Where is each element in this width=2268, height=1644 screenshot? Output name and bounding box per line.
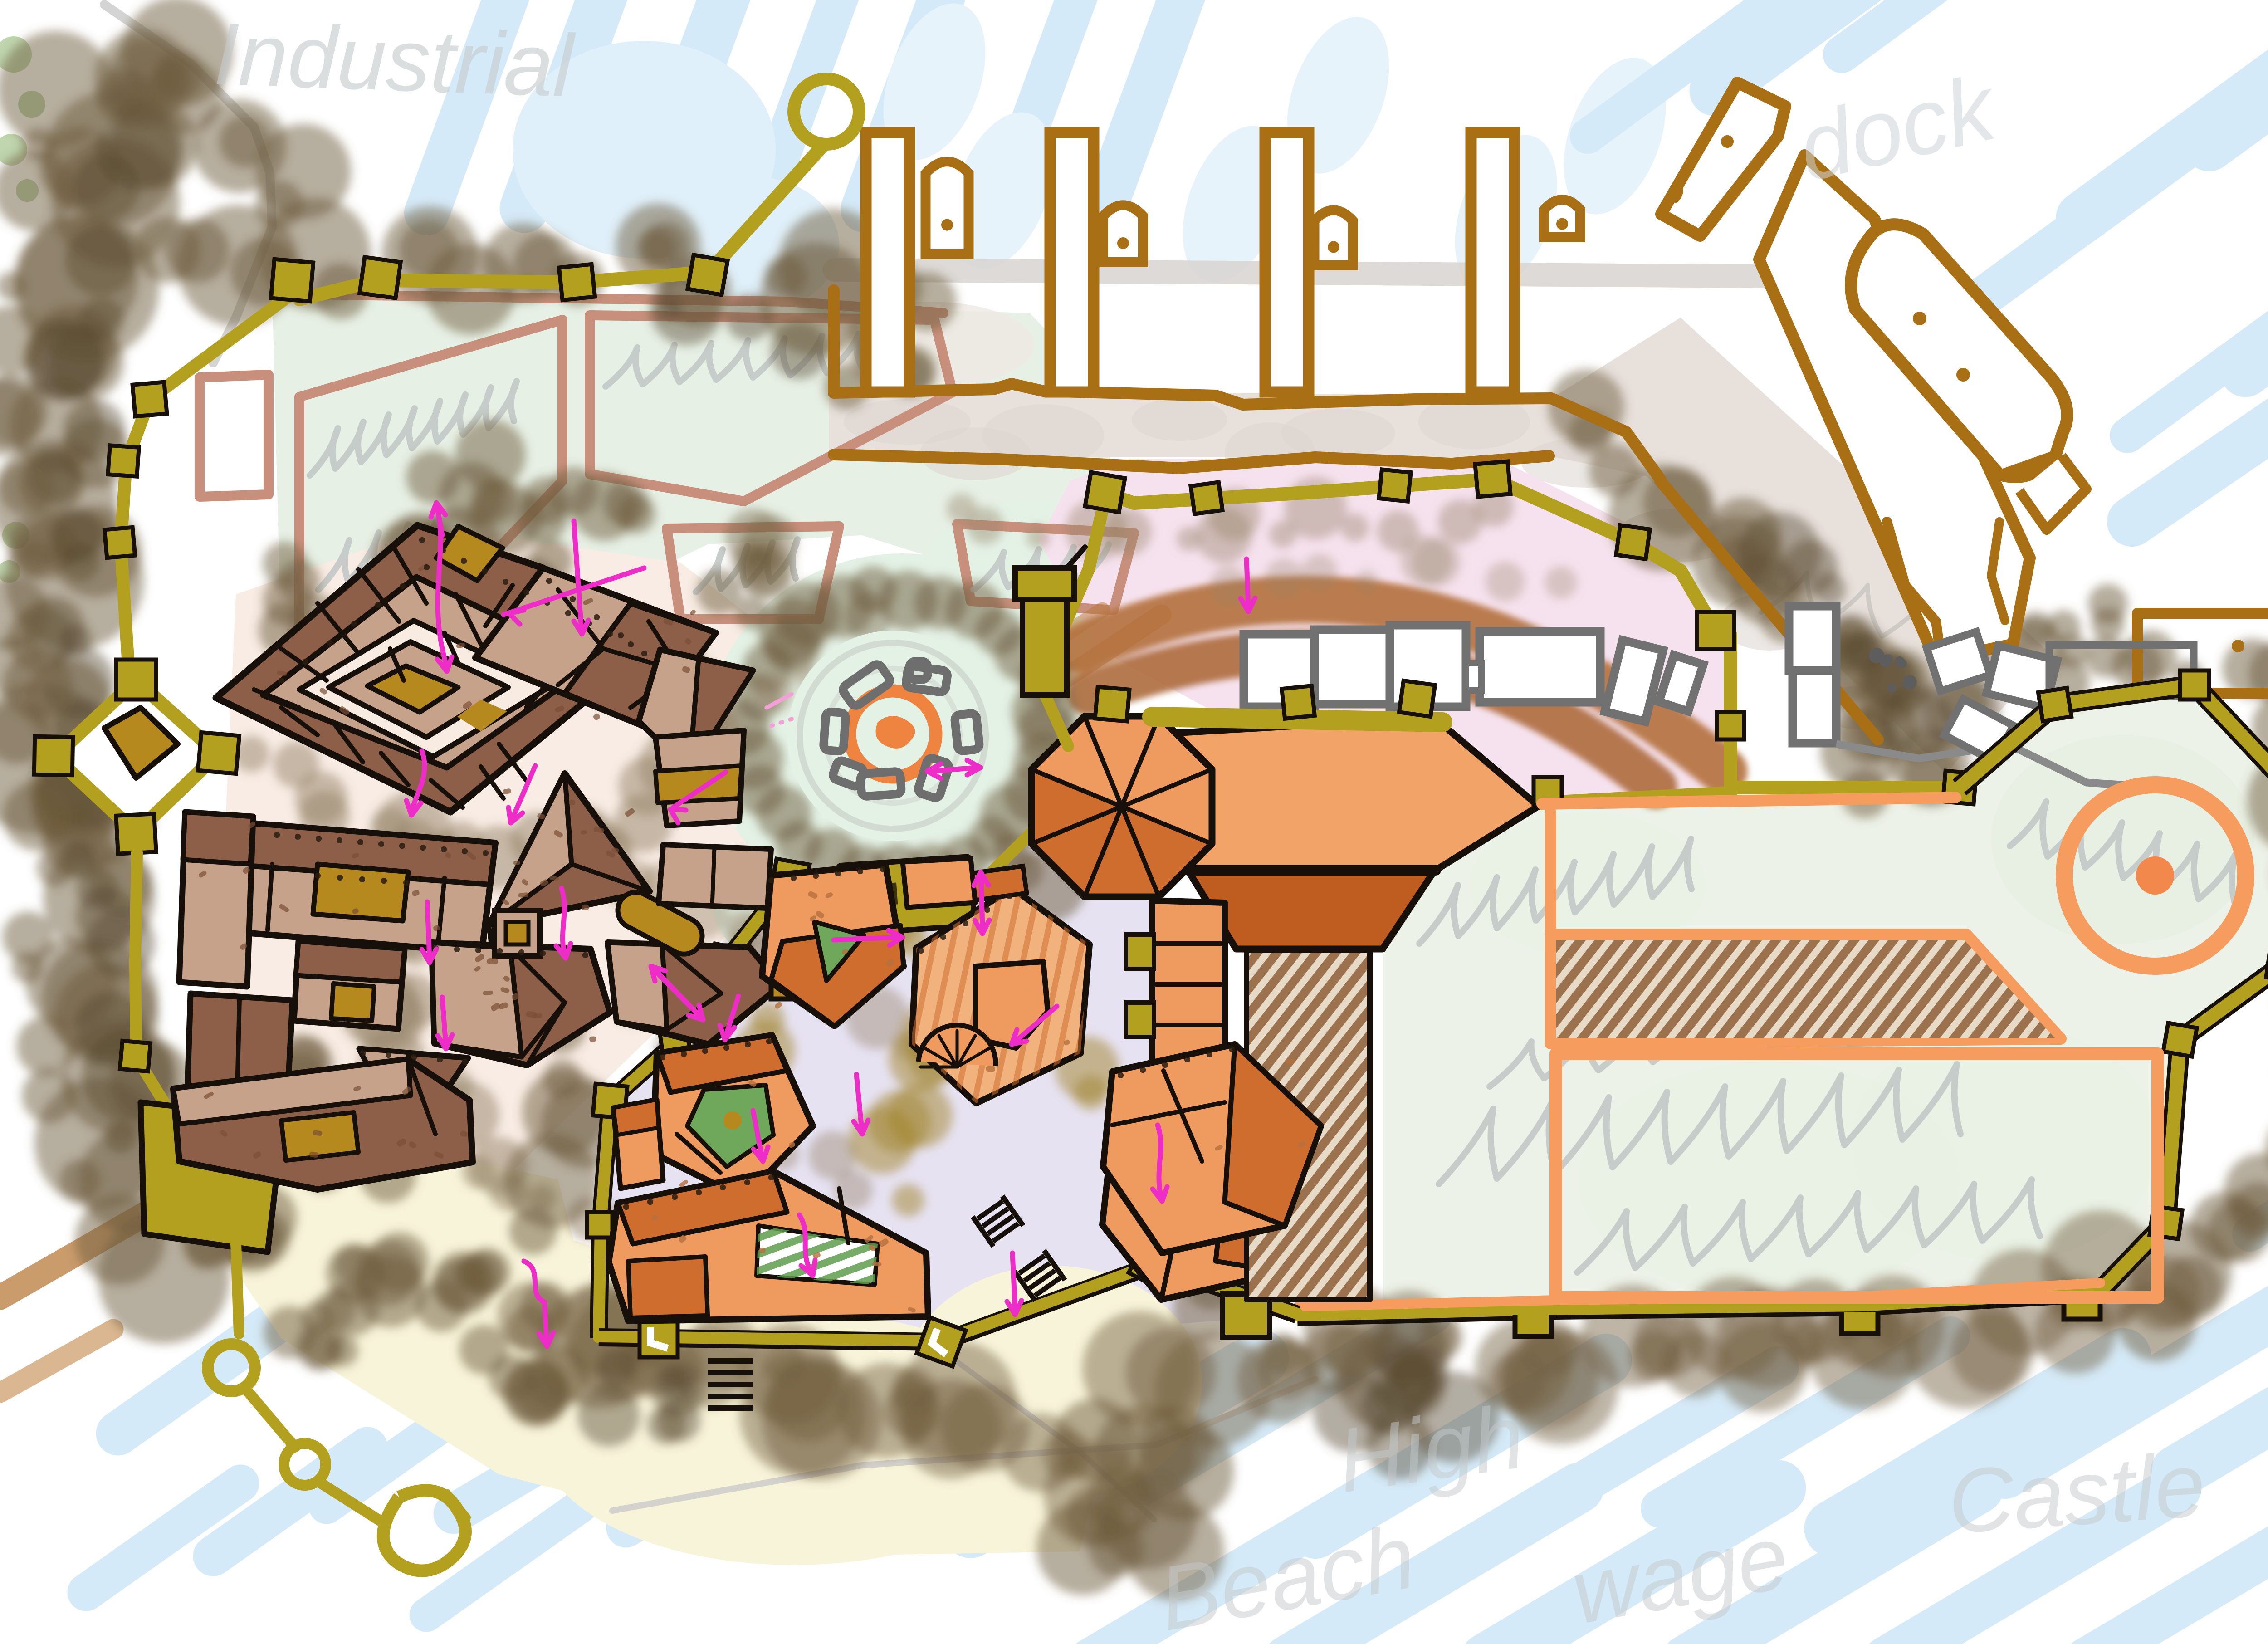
- svg-text:Industrial: Industrial: [213, 4, 577, 116]
- svg-text:Castle: Castle: [1945, 1434, 2208, 1553]
